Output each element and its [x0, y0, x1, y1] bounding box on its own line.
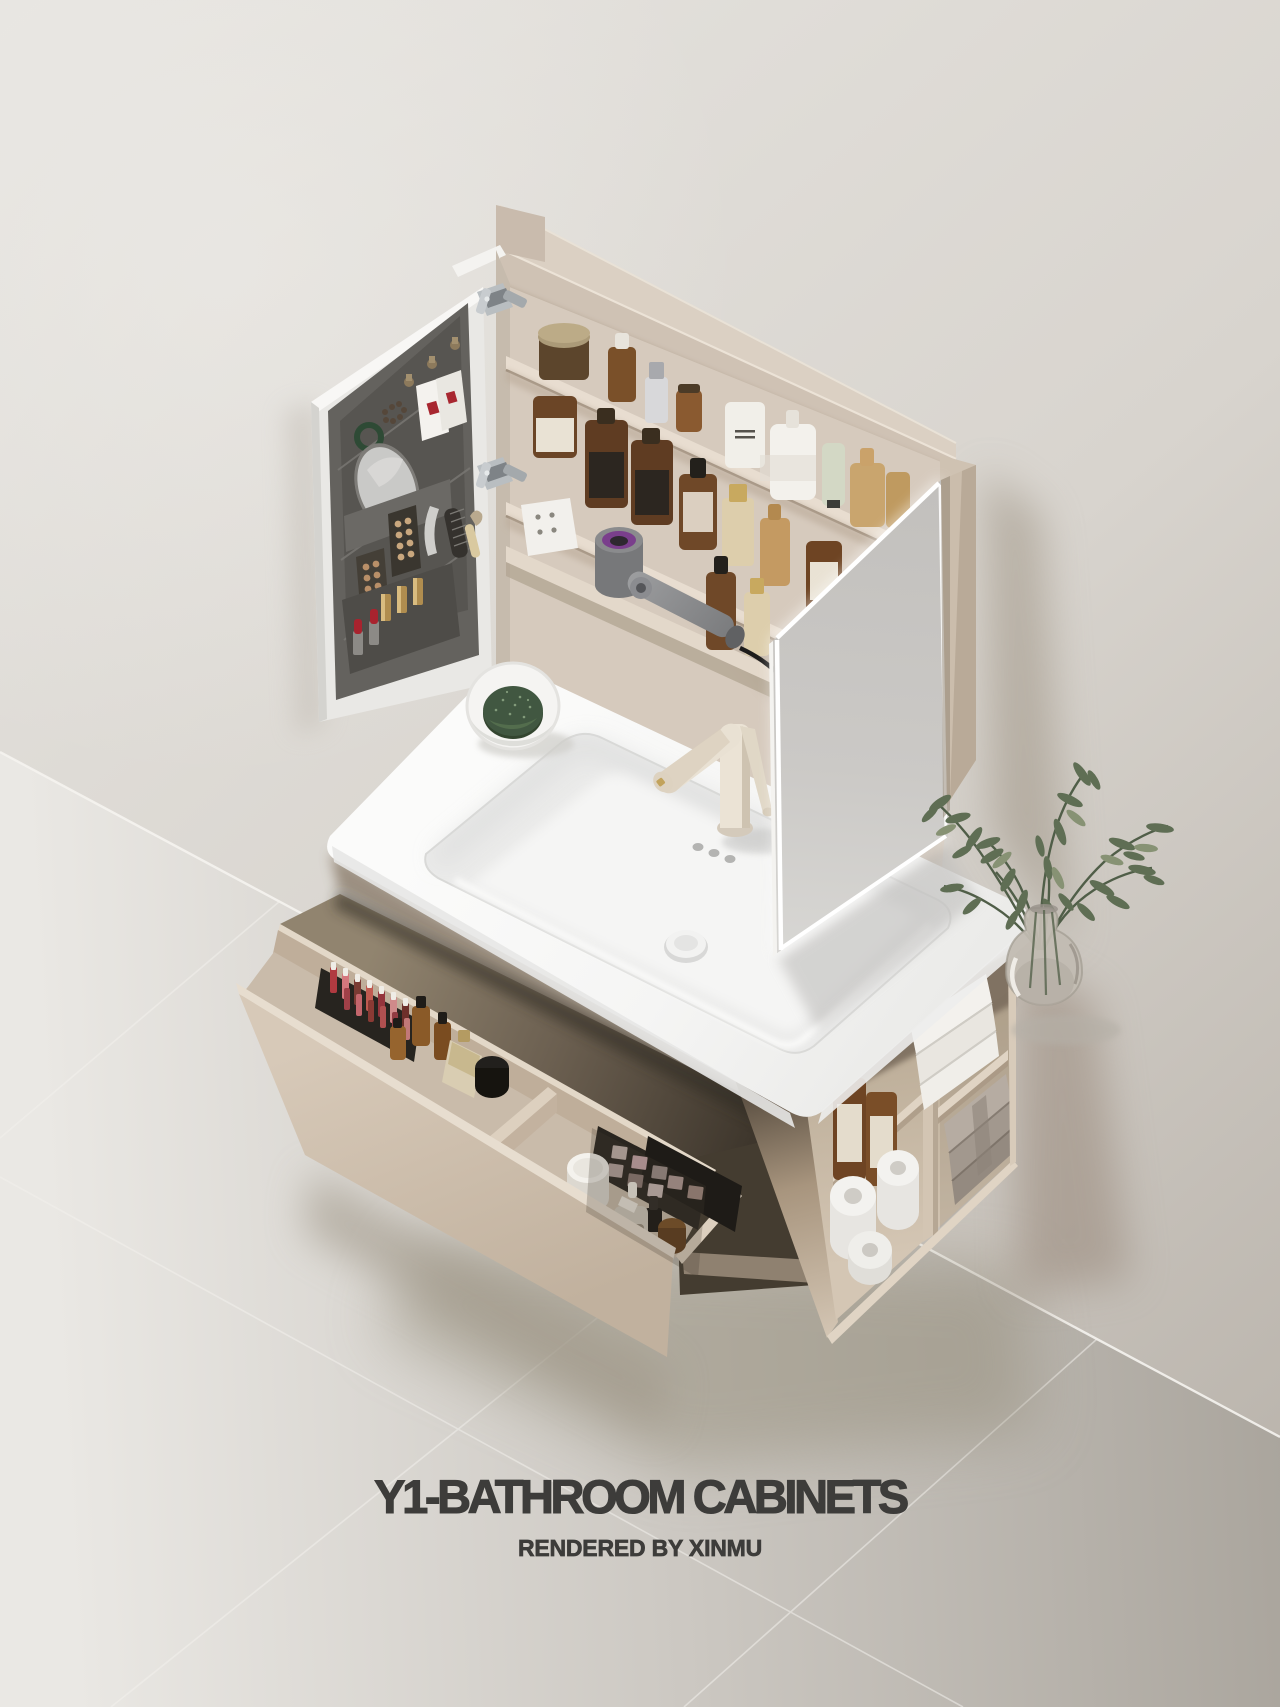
- svg-text:RENDERED BY XINMU: RENDERED BY XINMU: [518, 1535, 762, 1561]
- svg-text:Y1-BATHROOM CABINETS: Y1-BATHROOM CABINETS: [374, 1470, 908, 1523]
